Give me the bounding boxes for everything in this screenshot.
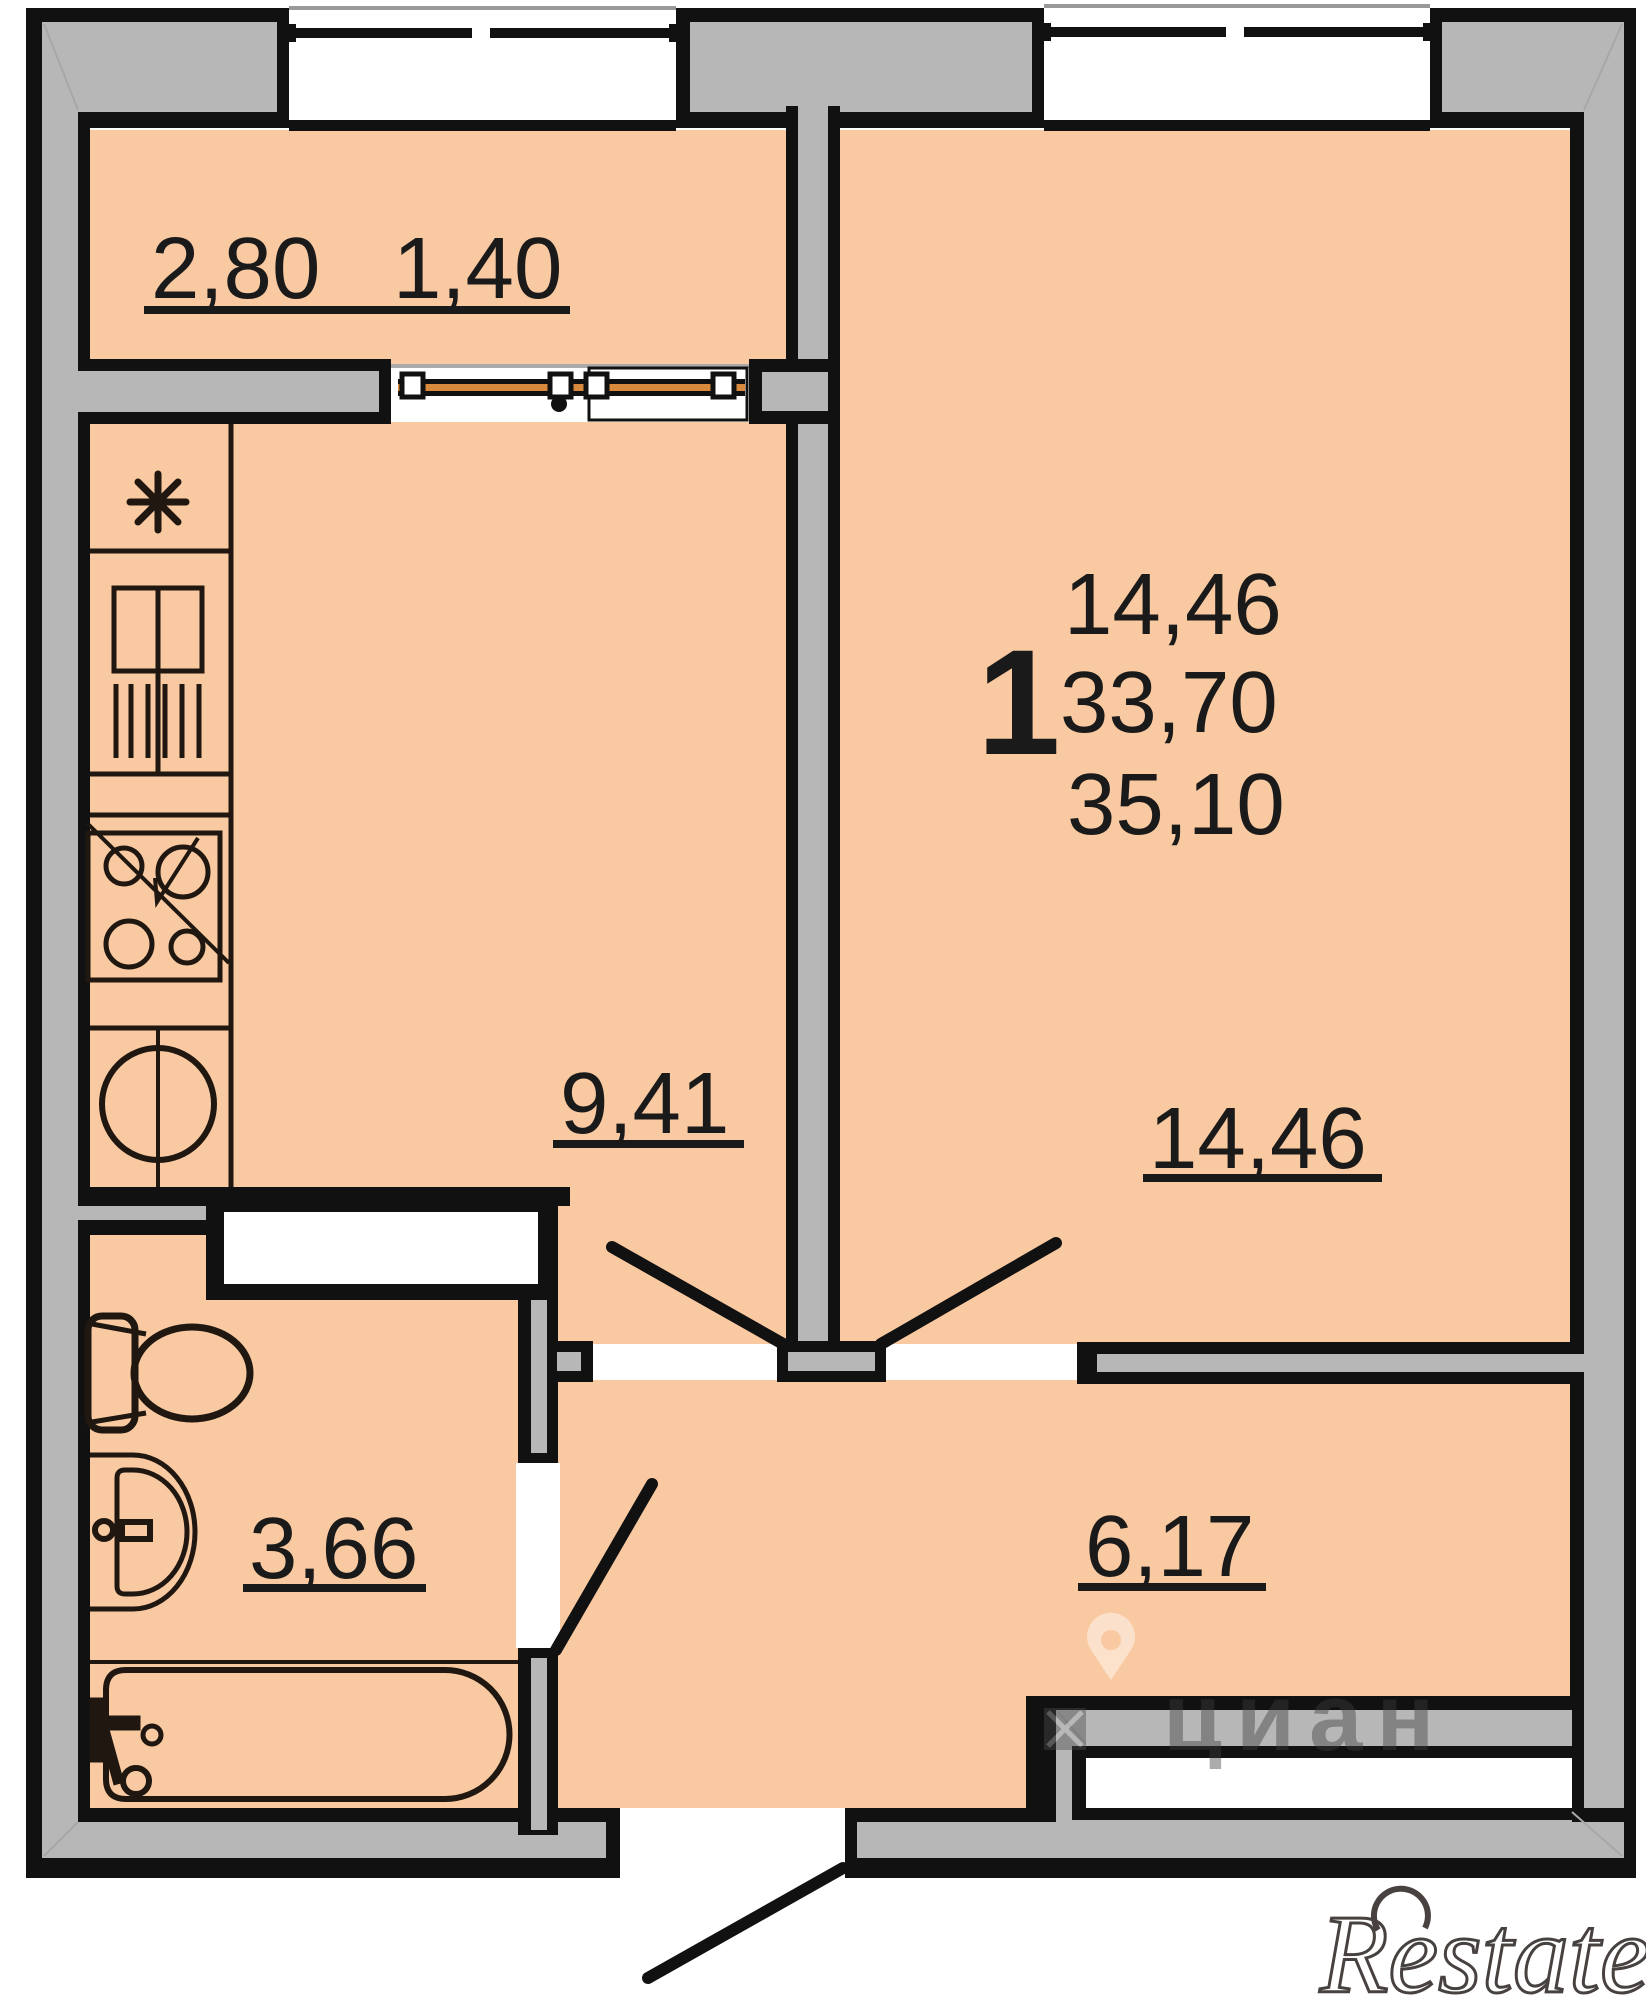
svg-text:6,17: 6,17 — [1085, 1498, 1254, 1595]
svg-text:1: 1 — [977, 618, 1060, 786]
svg-text:циан: циан — [1163, 1664, 1448, 1771]
svg-text:14,46: 14,46 — [1064, 556, 1282, 653]
svg-text:33,70: 33,70 — [1060, 654, 1278, 751]
svg-text:9,41: 9,41 — [560, 1055, 729, 1152]
svg-text:1,40: 1,40 — [393, 220, 562, 317]
svg-text:3,66: 3,66 — [249, 1500, 418, 1597]
svg-text:2,80: 2,80 — [151, 220, 320, 317]
svg-text:14,46: 14,46 — [1149, 1090, 1367, 1187]
svg-text:35,10: 35,10 — [1067, 756, 1285, 853]
svg-text:Restate: Restate — [1319, 1893, 1646, 2000]
